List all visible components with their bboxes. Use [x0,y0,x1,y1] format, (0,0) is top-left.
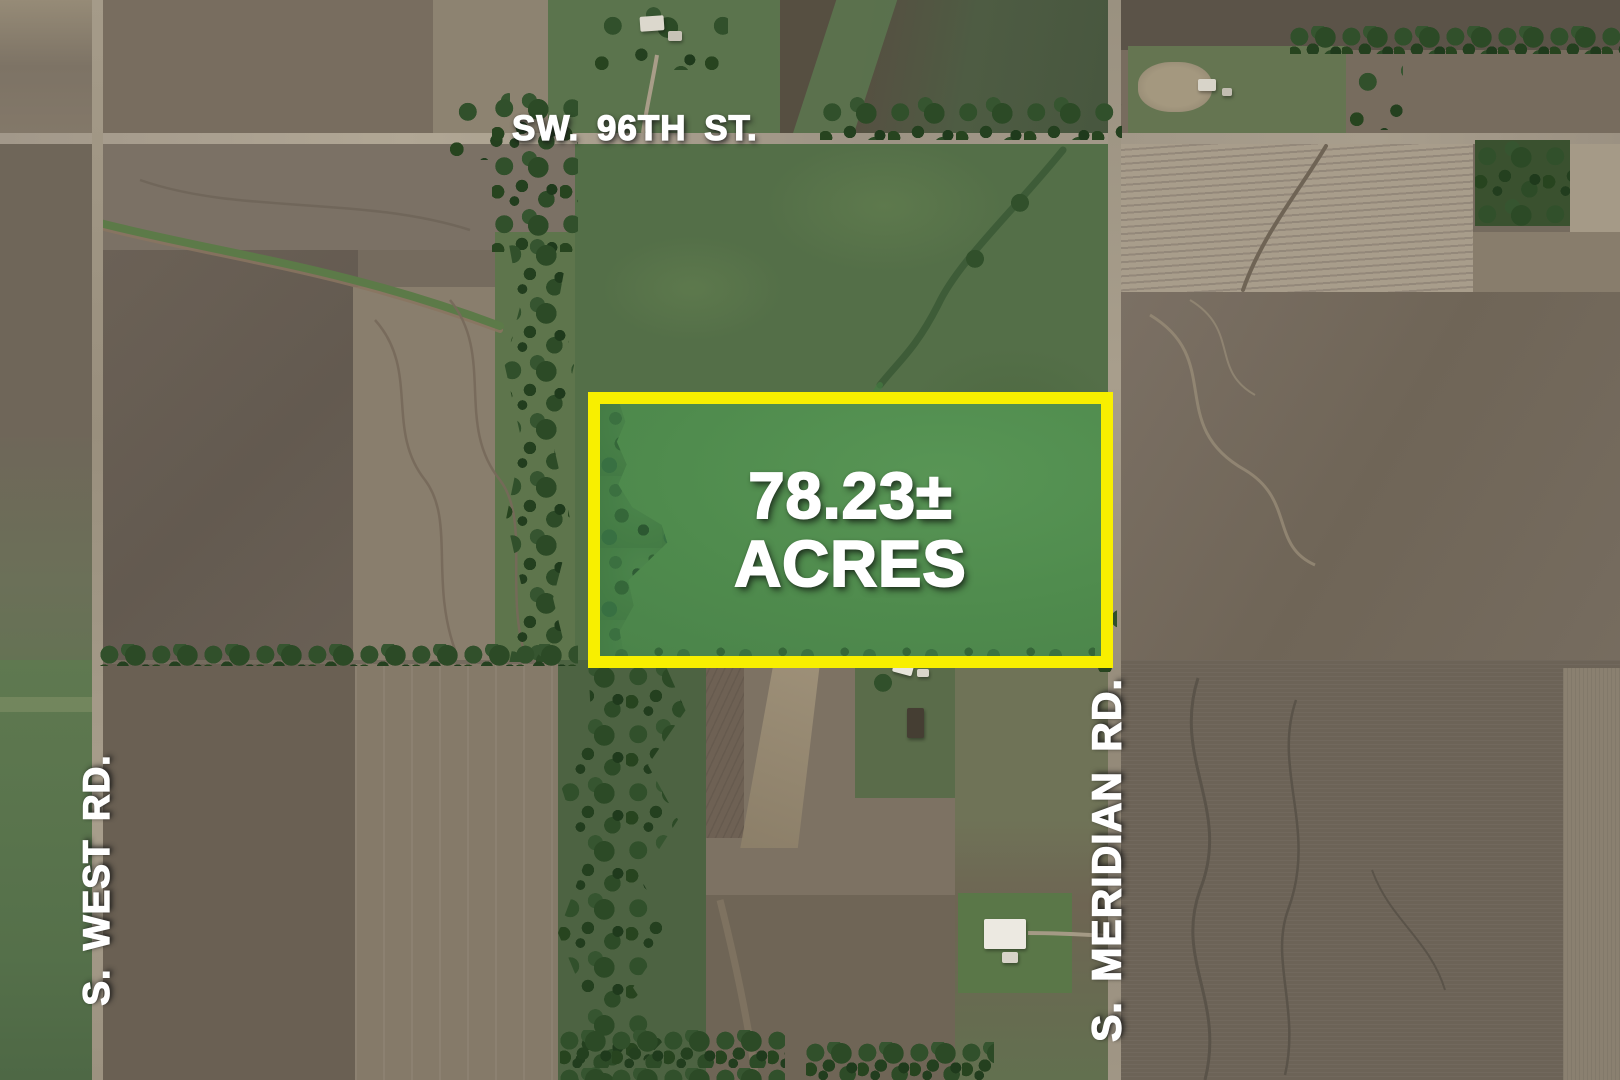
farm-building [640,15,665,32]
aerial-map: 78.23± ACRES SW. 96TH ST. S. WEST RD. S.… [0,0,1620,1080]
contour-line [1150,315,1315,565]
farm-building [1198,79,1216,91]
tree-line [806,1042,994,1080]
parcel-highlight: 78.23± ACRES [588,392,1113,668]
tree-line [100,644,578,666]
parcel-acreage-label: 78.23± ACRES [600,404,1101,656]
tree-block [1475,140,1570,226]
parcel-acreage-unit: ACRES [734,530,967,598]
road-label-s-west-rd: S. WEST RD. [76,754,118,1005]
creek-trees [948,228,1006,294]
terrace-line [140,180,470,230]
shed [1002,952,1018,963]
farm-building [668,31,682,41]
road-sw-96th-st [0,133,1620,144]
creek-line [1282,700,1299,1075]
creek-line [1191,678,1210,1080]
creek-line [1243,146,1326,290]
tree-line [820,96,1122,140]
tree-cluster [593,2,728,70]
creek-line [1372,870,1445,990]
road-label-sw-96th-st: SW. 96TH ST. [512,109,758,149]
creek-line [96,226,500,330]
tree-cluster [1348,58,1403,130]
house [984,919,1026,949]
contour-line [1190,300,1255,395]
farm-building [1222,88,1232,96]
road-label-s-meridian-rd: S. MERIDIAN RD. [1084,678,1131,1042]
parcel-acreage-value: 78.23± [748,462,952,530]
barn [907,708,924,738]
tree-line [560,1030,785,1080]
farm-building [917,669,929,677]
tree-line [1290,26,1620,54]
terrace-line [375,320,455,650]
creek-trees [993,172,1045,230]
